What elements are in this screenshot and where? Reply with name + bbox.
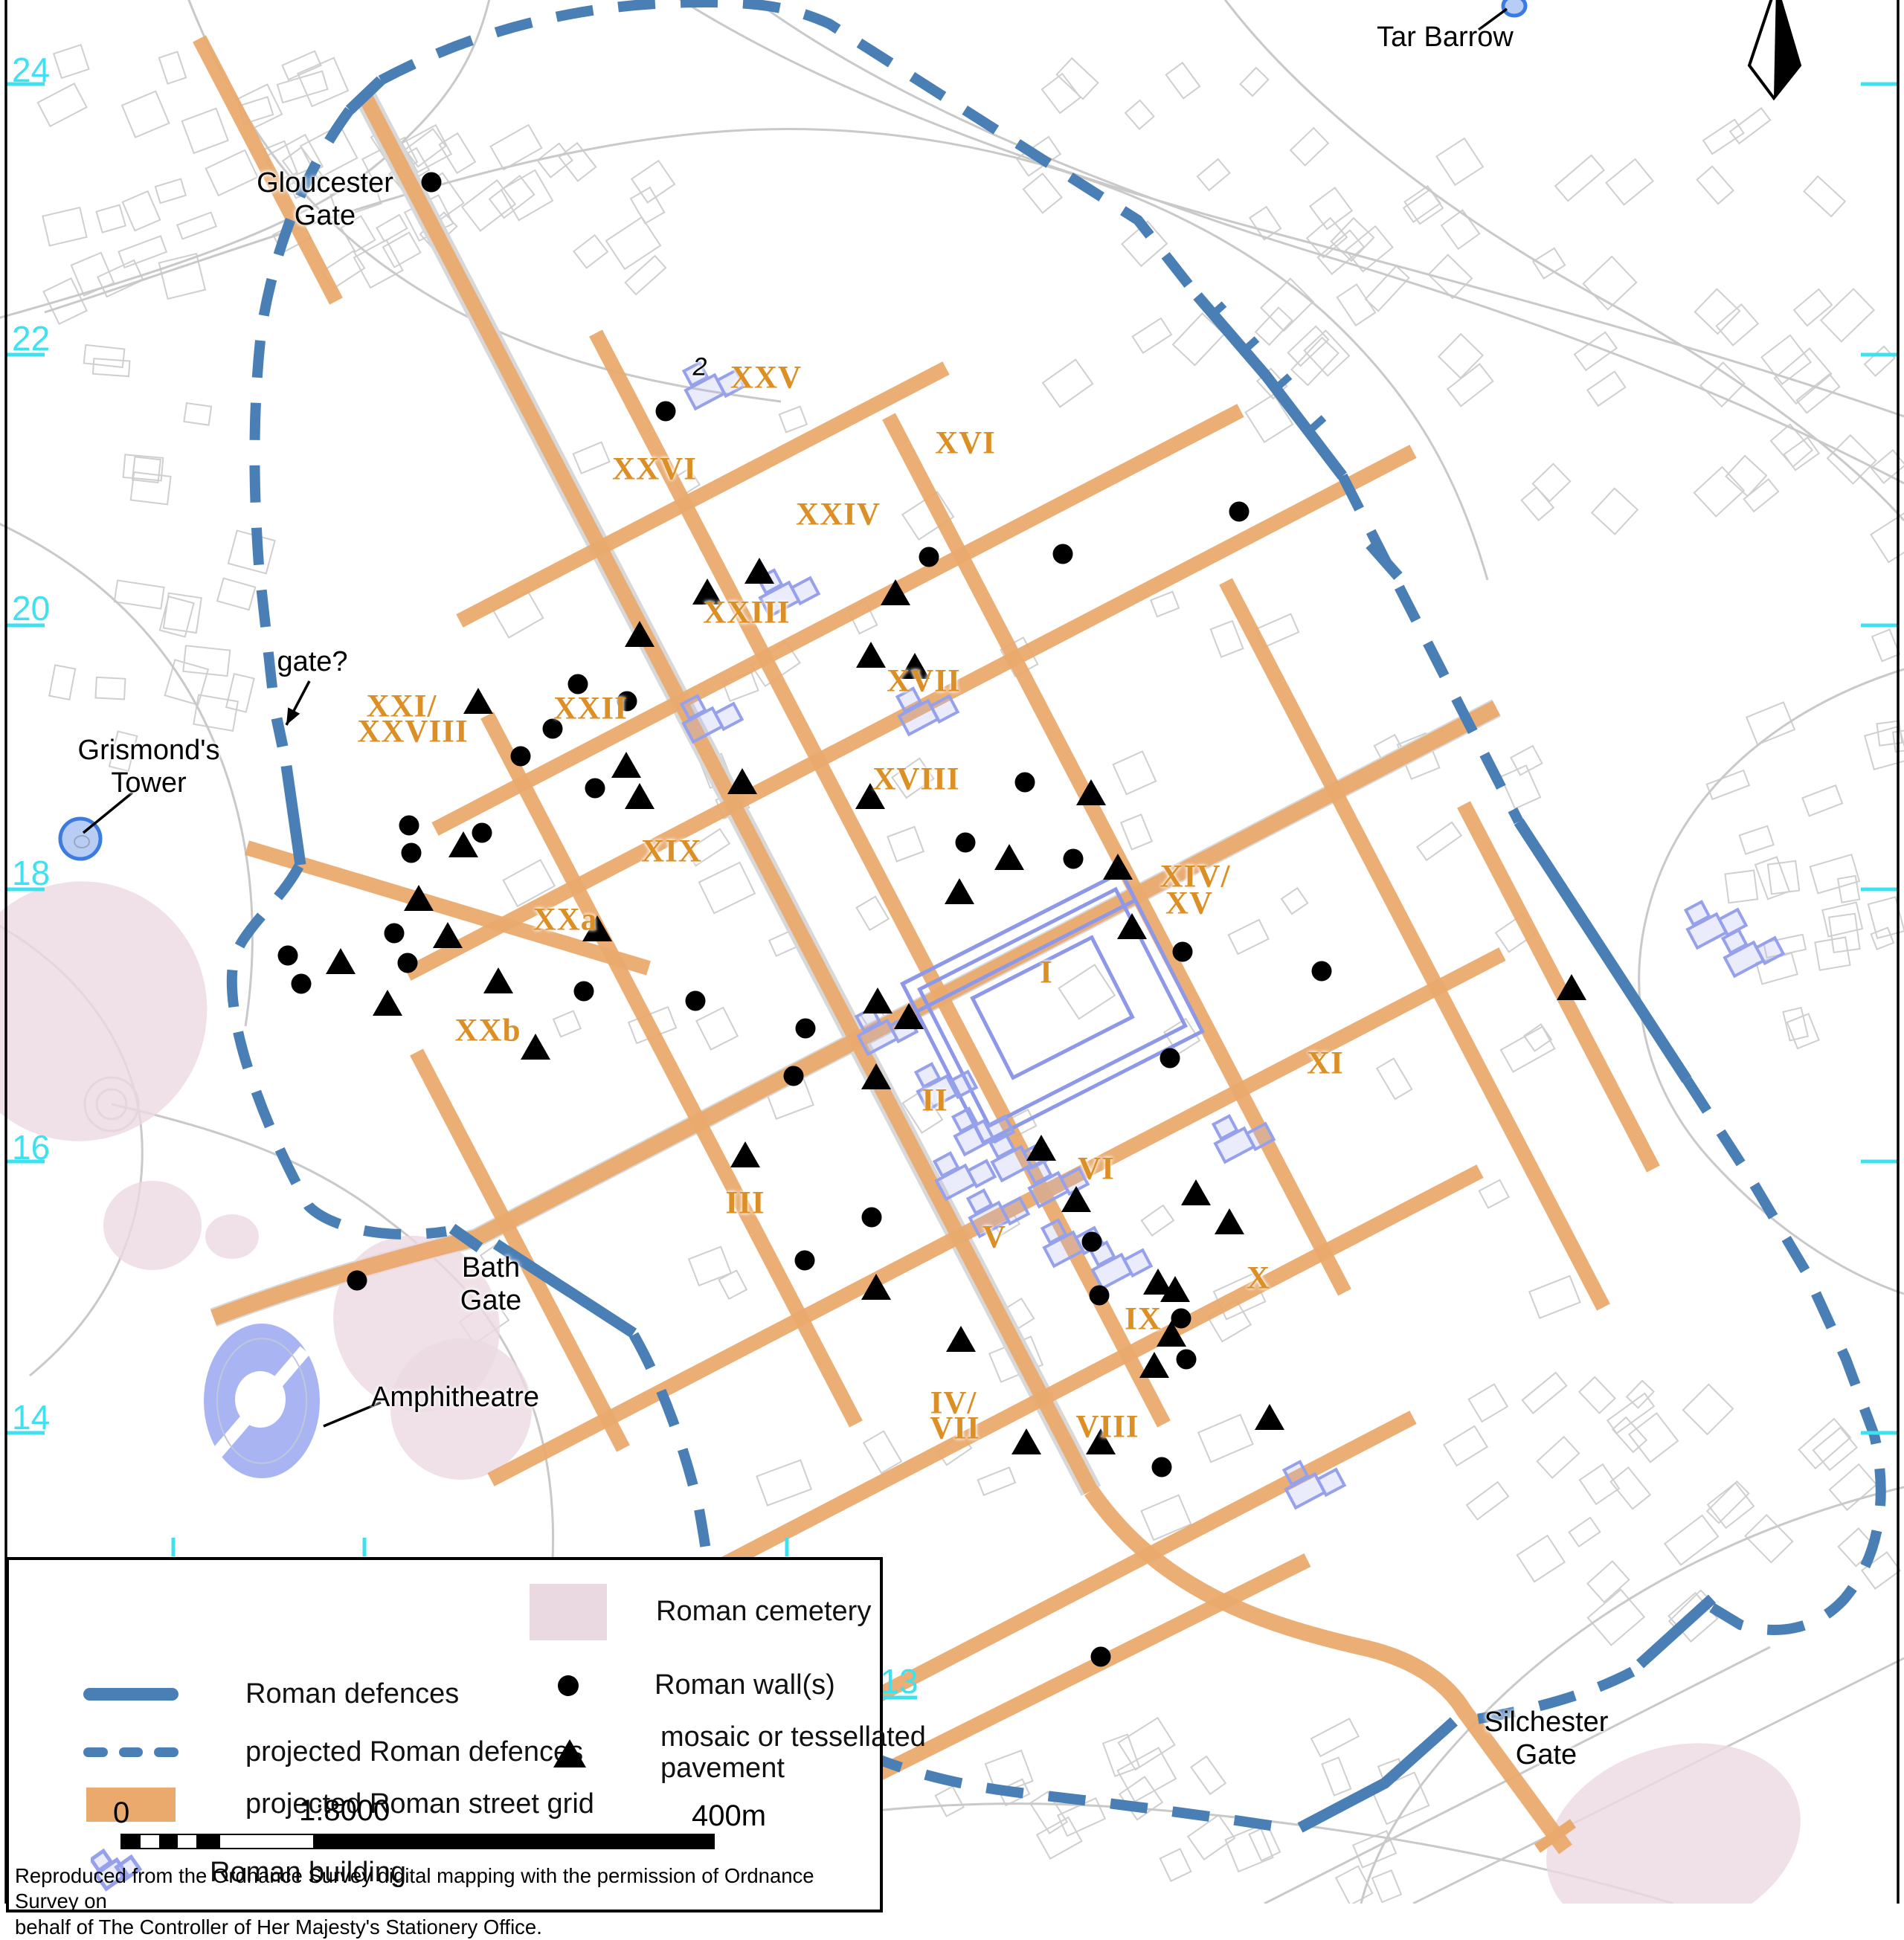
scale-zero-label: 0 [113,1796,129,1830]
mosaic-triangle [1139,1352,1169,1378]
roman-wall-dot [1229,502,1249,522]
mosaic-triangle [855,783,885,809]
scale-ratio-label: 1:8000 [299,1794,390,1828]
legend-label: mosaic or tessellated pavement [660,1722,928,1785]
mosaic-triangle [994,844,1024,870]
projected-defences-swatch [83,1747,178,1757]
mosaic-triangle [463,688,493,714]
mosaic-triangle [521,1034,550,1060]
roman-wall-dot [511,747,531,767]
roman-wall-dot [686,991,706,1011]
scale-bar [120,1834,715,1849]
legend-label: Roman wall(s) [654,1670,835,1701]
mosaic-triangle [945,878,974,904]
roman-wall-dot [1177,1350,1197,1370]
roman-wall-dot [399,816,419,836]
mosaic-triangle [1011,1428,1041,1454]
roman-wall-dot [795,1251,815,1271]
mosaic-triangle [1255,1404,1284,1430]
mosaic-triangle-swatch [553,1739,586,1767]
roman-wall-dot [1160,1048,1180,1069]
legend-item-mosaic: mosaic or tessellated pavement [553,1722,928,1785]
roman-defences-swatch [83,1688,178,1701]
mosaic-triangle [611,752,641,778]
roman-wall-dot [656,402,676,422]
roman-wall-dot [1064,849,1084,869]
mosaic-triangle [433,922,463,948]
legend-label: projected Roman street grid [245,1789,594,1820]
roman-wall-dot [568,674,588,695]
mosaic-triangle [856,642,886,668]
mosaic-triangle [946,1326,976,1352]
roman-wall-dot [1015,773,1035,793]
roman-wall-dot [956,833,976,853]
attribution: Reproduced from the Ordnance Survey digi… [15,1863,848,1940]
attribution-line-1: Reproduced from the Ordnance Survey digi… [15,1863,848,1915]
mosaic-triangle [483,967,513,993]
roman-wall-dot [919,547,939,567]
mosaic-triangle [863,987,892,1013]
roman-wall-dot [1152,1457,1172,1477]
mosaic-triangle [900,653,930,679]
legend-label: Roman defences [245,1679,459,1710]
north-arrow-icon [1749,0,1800,98]
roman-wall-dot [385,924,405,944]
mosaic-triangle [1215,1208,1244,1234]
roman-wall-dot [1091,1647,1111,1667]
mosaic-triangle [1086,1428,1116,1454]
roman-wall-dot [574,982,594,1002]
mosaic-triangle [373,990,402,1016]
legend-item-roman-cemetery: Roman cemetery [530,1584,871,1640]
legend-item-roman-defences: Roman defences [83,1679,459,1710]
mosaic-triangle [625,783,654,809]
roman-wall-dot [278,946,298,966]
legend-label: Roman cemetery [656,1596,871,1628]
legend-item-roman-walls: Roman wall(s) [558,1670,835,1701]
roman-wall-dot [402,843,422,863]
roman-cemetery-swatch [530,1584,607,1640]
roman-wall-dot [398,953,418,973]
roman-wall-dot [543,719,563,739]
legend-label: projected Roman defences [245,1737,583,1768]
roman-wall-dot [784,1066,804,1086]
roman-wall-dot [796,1019,816,1039]
roman-wall-dot [617,692,637,712]
roman-wall-dot [585,779,605,799]
roman-wall-dot [862,1208,882,1228]
mosaic-triangle [326,948,356,974]
roman-wall-dot [472,823,492,843]
roman-wall-dot [1082,1232,1102,1252]
roman-wall-dot [1173,942,1193,962]
street-grid-swatch [86,1788,176,1822]
mosaic-triangle [1181,1179,1211,1205]
mosaic-triangle [730,1141,760,1167]
attribution-line-2: behalf of The Controller of Her Majesty'… [15,1915,848,1940]
legend-item-projected-defences: projected Roman defences [83,1737,583,1768]
roman-wall-dot [347,1271,367,1291]
legend: Roman defences projected Roman defences … [6,1557,883,1912]
roman-wall-dot [1053,544,1073,564]
roman-wall-dot [292,974,312,994]
roman-wall-dot [1312,961,1332,982]
roman-wall-dot [1090,1286,1110,1306]
roman-wall-dot [422,173,442,193]
mosaic-triangle [744,558,774,584]
scale-distance-label: 400m [692,1799,766,1833]
roman-wall-dot-swatch [558,1675,579,1696]
